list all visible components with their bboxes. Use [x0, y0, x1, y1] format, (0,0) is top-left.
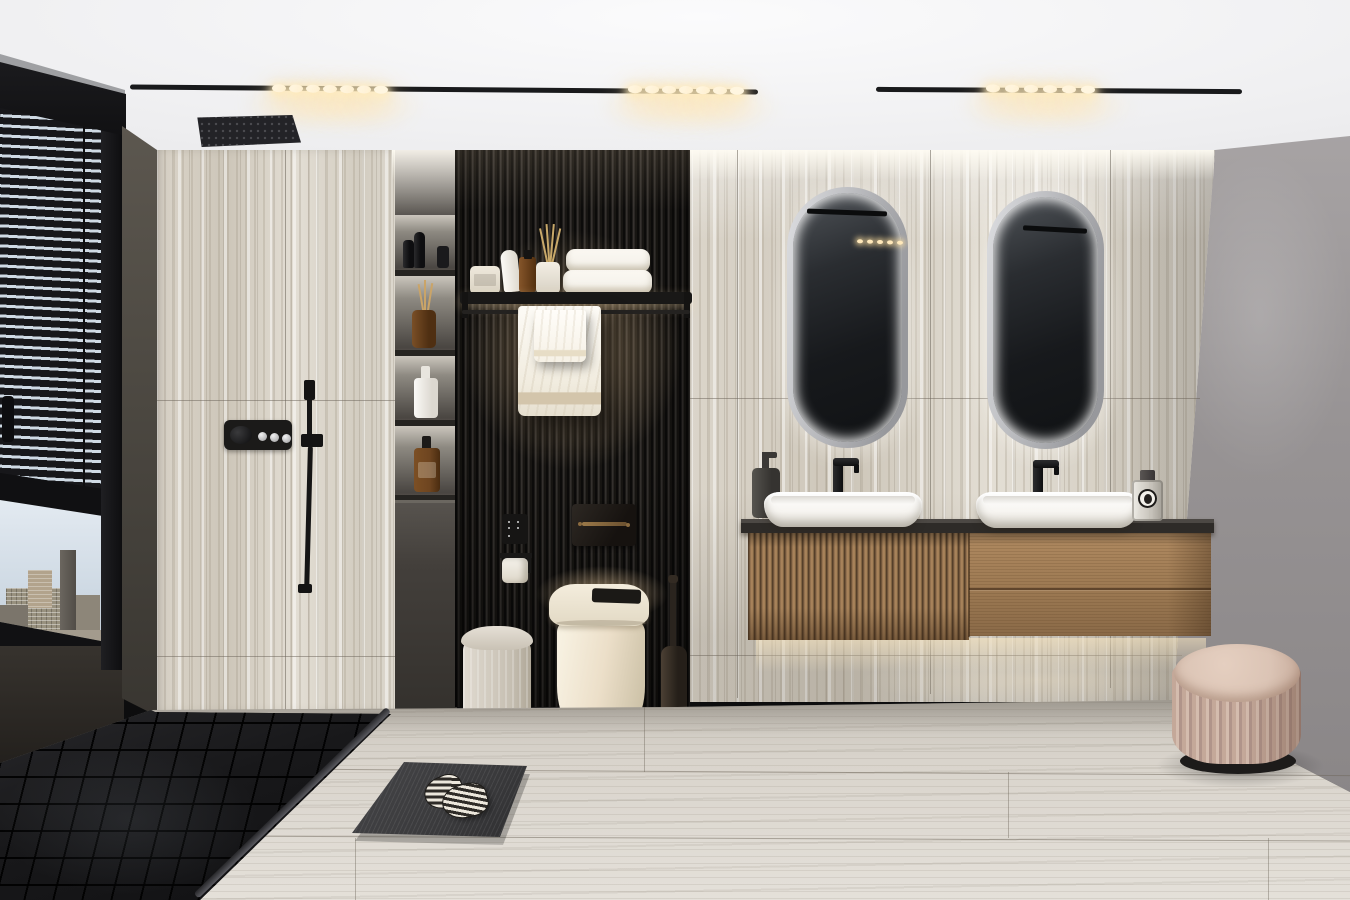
spotlight [645, 85, 659, 93]
panel-pin [517, 527, 519, 529]
reflected-spot [877, 240, 883, 244]
led-mirror-right [987, 191, 1104, 449]
folded-towel [563, 270, 652, 294]
spotlight [986, 84, 1000, 92]
faucet-spout-tip [1054, 466, 1059, 475]
under-cabinet-glow [756, 638, 1206, 672]
niche-cove-light [395, 150, 457, 220]
window-handle [2, 396, 14, 442]
white-pump-bottle [414, 378, 438, 418]
shower-button [282, 434, 291, 443]
perfume-label-motif [1144, 494, 1152, 504]
spotlight [1005, 85, 1019, 93]
spotlight [713, 86, 727, 94]
spotlight [374, 86, 388, 94]
city-building [28, 570, 52, 608]
tile-joint [155, 656, 395, 657]
tile-joint [737, 150, 738, 698]
flush-pin [626, 523, 630, 527]
cabinet-seam [968, 533, 970, 637]
rain-shower-head [193, 115, 301, 147]
hanging-hand-towel [534, 310, 586, 362]
wall-return-strip [122, 126, 157, 716]
spotlight-group [272, 84, 388, 94]
panel-pin [508, 521, 510, 523]
blind-cord [83, 110, 85, 492]
toilet-brush-handle [670, 580, 676, 650]
soap-dispenser-spout [767, 452, 777, 458]
spotlight [1062, 85, 1076, 93]
toilet-brush-knob [668, 575, 678, 583]
amber-bottle [519, 257, 536, 292]
toilet-sensor-strip [592, 588, 641, 604]
spotlight [1081, 86, 1095, 94]
amber-diffuser-bottle [412, 310, 436, 348]
tile-joint [155, 400, 395, 401]
flush-plate-bar [582, 522, 627, 526]
mirror-glass [793, 193, 902, 442]
spotlight [628, 85, 642, 93]
reflected-spot [887, 240, 893, 244]
wall-shelf [460, 292, 692, 304]
window-frame-right [101, 92, 122, 670]
black-bottle [414, 232, 425, 268]
pouf-cushion [1174, 644, 1300, 702]
panel-pin [508, 527, 510, 529]
hose-wall-outlet [298, 584, 312, 593]
toilet-paper-roll [502, 558, 528, 583]
reflected-spot [857, 239, 863, 243]
shower-button [258, 432, 267, 441]
floor-joint [1008, 772, 1009, 838]
spotlight [357, 85, 371, 93]
spotlight [306, 85, 320, 93]
panel-pin [517, 521, 519, 523]
spotlight [679, 86, 693, 94]
spotlight [340, 85, 354, 93]
spotlight [272, 84, 286, 92]
hand-shower-head [304, 380, 315, 400]
reflected-spot [897, 241, 903, 245]
vessel-basin-right [976, 492, 1139, 528]
shower-button [270, 433, 279, 442]
spotlight [1043, 85, 1057, 93]
wall-control-panel [502, 514, 528, 544]
spotlight-group [628, 85, 744, 95]
hand-shower-bracket [301, 434, 323, 447]
basin-rim [983, 496, 1132, 504]
flush-pin [578, 522, 582, 526]
black-bottle [403, 240, 414, 268]
hand-shower-handle [307, 398, 312, 438]
basin-rim [771, 496, 915, 504]
spotlight [1024, 85, 1038, 93]
jar-label [474, 274, 496, 286]
mirror-reflection-lights [857, 239, 903, 245]
led-mirror-left [787, 187, 908, 448]
floor-joint [1268, 838, 1269, 900]
bottle-cap [524, 250, 532, 259]
spotlight [323, 85, 337, 93]
black-vase [437, 246, 449, 268]
mirror-glass [993, 197, 1098, 443]
reflected-spot [867, 240, 873, 244]
spotlight [696, 86, 710, 94]
bottle-label [418, 462, 436, 478]
drawer-divider [969, 588, 1211, 590]
panel-pin [508, 535, 510, 537]
floor-joint [644, 707, 645, 772]
spotlight [662, 86, 676, 94]
mirror-reflection-track [807, 209, 887, 217]
tile-joint [690, 398, 1200, 399]
ceramic-diffuser-jar [536, 262, 560, 293]
shower-knob [230, 426, 252, 444]
spotlight [289, 84, 303, 92]
shelf-bracket [684, 292, 690, 318]
vessel-basin-left [764, 492, 922, 527]
shelf-bracket [462, 292, 468, 318]
mirror-reflection-track [1023, 225, 1087, 233]
bathroom-render [0, 0, 1350, 900]
diffuser-reed [424, 280, 426, 312]
vanity-cabinet-drawers [969, 533, 1211, 636]
folded-towel [566, 249, 650, 272]
faucet-spout-tip [854, 464, 859, 473]
spotlight [730, 87, 744, 95]
floor-joint [355, 838, 356, 900]
spotlight-group [986, 84, 1095, 94]
pedal-bin-lid [461, 626, 533, 650]
niche-lower-cabinet [395, 500, 457, 712]
toilet-seat-seam [556, 620, 646, 626]
vanity-cabinet-fluted [748, 533, 969, 640]
